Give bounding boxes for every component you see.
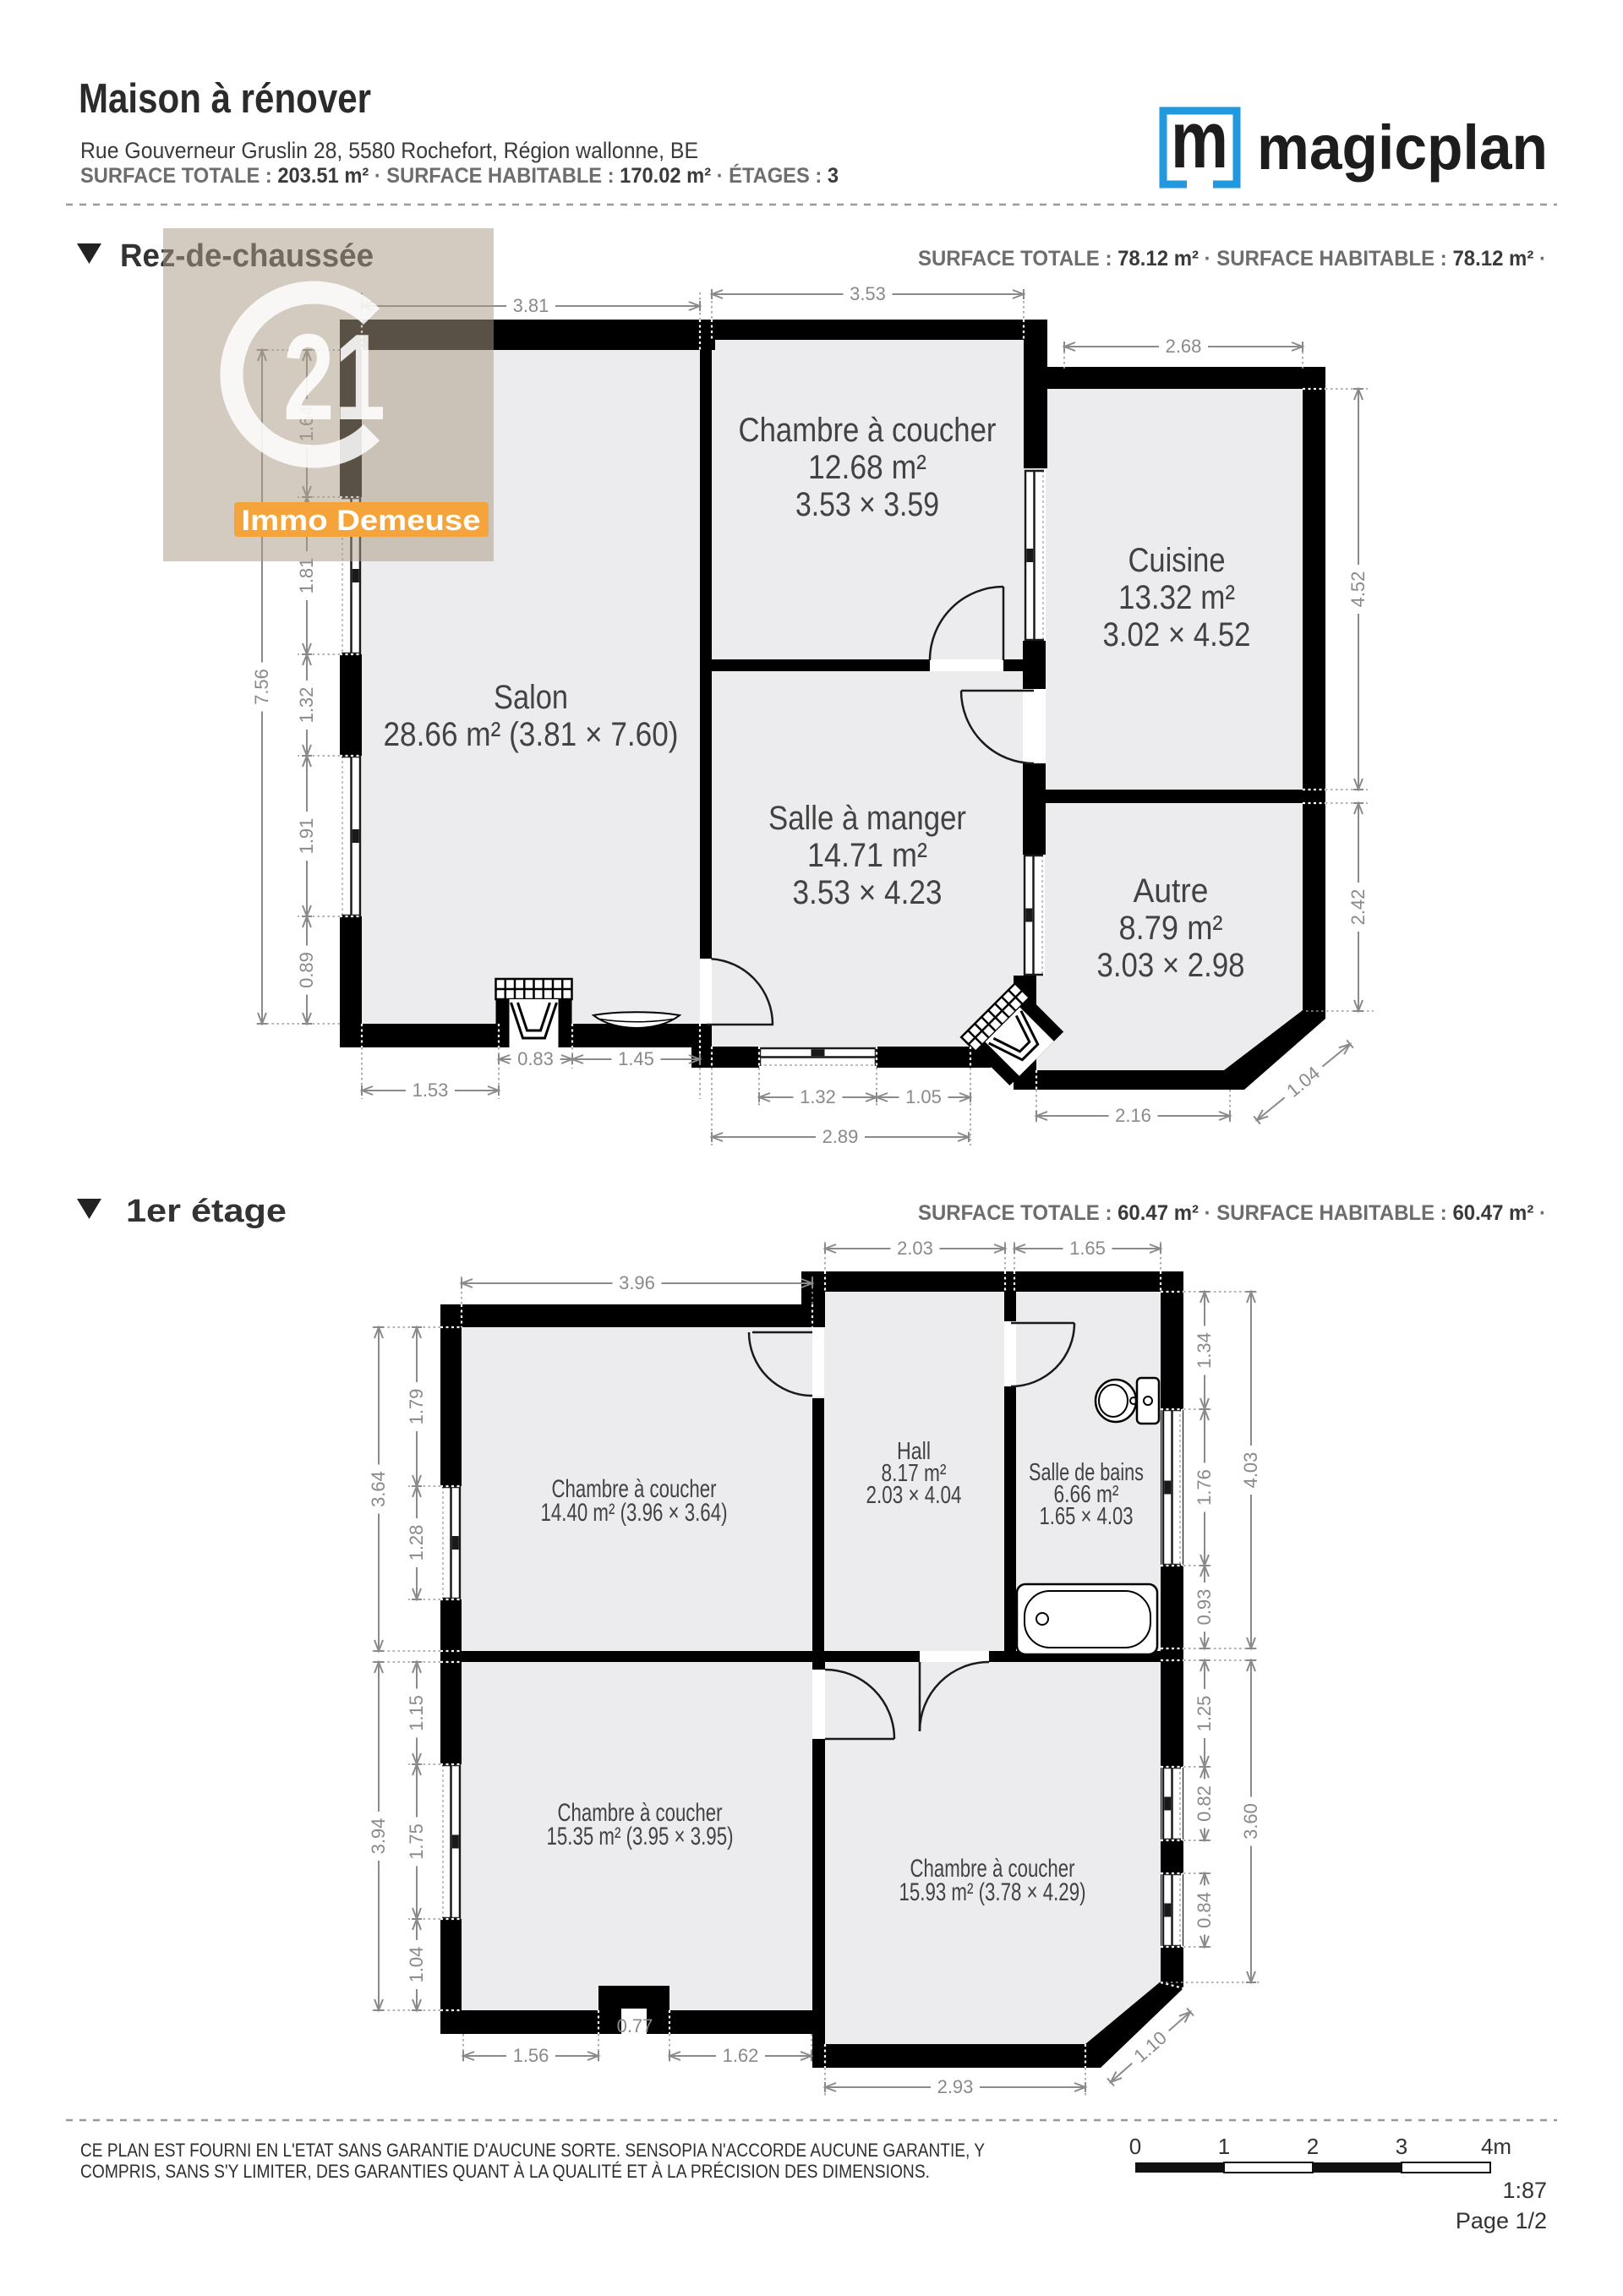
svg-text:COMPRIS, SANS S'Y LIMITER, DES: COMPRIS, SANS S'Y LIMITER, DES GARANTIES… <box>80 2161 930 2182</box>
svg-text:2.93: 2.93 <box>937 2076 974 2097</box>
svg-text:2.68: 2.68 <box>1166 336 1202 357</box>
svg-text:15.93 m² (3.78 × 4.29): 15.93 m² (3.78 × 4.29) <box>899 1878 1086 1906</box>
svg-text:2.42: 2.42 <box>1347 889 1369 926</box>
svg-text:1.65: 1.65 <box>1069 1238 1106 1259</box>
svg-text:3.96: 3.96 <box>619 1272 655 1293</box>
svg-text:1.76: 1.76 <box>1194 1469 1215 1506</box>
svg-text:1.28: 1.28 <box>406 1525 427 1561</box>
svg-text:4.52: 4.52 <box>1347 571 1369 608</box>
svg-text:1.04: 1.04 <box>406 1947 427 1983</box>
svg-text:0.89: 0.89 <box>296 952 317 988</box>
svg-text:1.34: 1.34 <box>1194 1332 1215 1369</box>
svg-text:Page 1/2: Page 1/2 <box>1456 2208 1547 2233</box>
svg-text:13.32 m²: 13.32 m² <box>1118 579 1235 616</box>
svg-text:3.53 × 3.59: 3.53 × 3.59 <box>795 486 939 523</box>
svg-text:1.56: 1.56 <box>513 2045 549 2066</box>
svg-text:1: 1 <box>1218 2134 1230 2159</box>
svg-text:3.53: 3.53 <box>850 283 886 304</box>
svg-text:2.16: 2.16 <box>1115 1105 1151 1126</box>
svg-text:15.35 m² (3.95 × 3.95): 15.35 m² (3.95 × 3.95) <box>547 1823 734 1850</box>
svg-text:3.81: 3.81 <box>513 295 549 316</box>
svg-text:SURFACE TOTALE : 60.47 m² · SU: SURFACE TOTALE : 60.47 m² · SURFACE HABI… <box>918 1201 1546 1225</box>
svg-text:3.64: 3.64 <box>368 1471 389 1507</box>
svg-text:1.62: 1.62 <box>723 2045 759 2066</box>
svg-text:1.75: 1.75 <box>406 1823 427 1860</box>
svg-text:1.81: 1.81 <box>296 558 317 594</box>
svg-text:2.89: 2.89 <box>822 1126 859 1147</box>
svg-text:Immo Demeuse: Immo Demeuse <box>242 505 481 537</box>
svg-text:1:87: 1:87 <box>1502 2178 1547 2203</box>
svg-text:14.40 m² (3.96 × 3.64): 14.40 m² (3.96 × 3.64) <box>541 1499 728 1527</box>
svg-text:0.93: 0.93 <box>1194 1589 1215 1626</box>
svg-text:3.53 × 4.23: 3.53 × 4.23 <box>793 874 943 911</box>
svg-text:0.83: 0.83 <box>517 1048 554 1069</box>
svg-text:14.71 m²: 14.71 m² <box>807 837 927 874</box>
svg-text:2: 2 <box>1307 2134 1319 2159</box>
svg-text:0.84: 0.84 <box>1194 1892 1215 1928</box>
svg-text:0.82: 0.82 <box>1194 1785 1215 1822</box>
svg-text:SURFACE TOTALE : 78.12 m² · SU: SURFACE TOTALE : 78.12 m² · SURFACE HABI… <box>918 247 1546 271</box>
svg-text:1.25: 1.25 <box>1194 1696 1215 1732</box>
svg-text:Autre: Autre <box>1134 872 1209 910</box>
svg-text:magicplan: magicplan <box>1257 112 1548 183</box>
svg-text:12.68 m²: 12.68 m² <box>808 449 926 486</box>
svg-text:1.32: 1.32 <box>800 1086 836 1107</box>
svg-text:Rue Gouverneur Gruslin 28, 558: Rue Gouverneur Gruslin 28, 5580 Rochefor… <box>80 138 698 163</box>
svg-text:3.02 × 4.52: 3.02 × 4.52 <box>1103 616 1251 653</box>
svg-text:0: 0 <box>1129 2134 1141 2159</box>
svg-text:Salle à manger: Salle à manger <box>768 800 966 837</box>
svg-text:8.79 m²: 8.79 m² <box>1119 910 1223 947</box>
svg-text:SURFACE TOTALE : 203.51 m² · S: SURFACE TOTALE : 203.51 m² · SURFACE HAB… <box>80 163 839 188</box>
svg-text:4m: 4m <box>1481 2134 1511 2159</box>
svg-text:2.03 × 4.04: 2.03 × 4.04 <box>866 1482 962 1509</box>
svg-text:Salon: Salon <box>494 679 568 716</box>
svg-text:1.32: 1.32 <box>296 687 317 724</box>
svg-text:7.56: 7.56 <box>251 669 272 705</box>
svg-text:1er étage: 1er étage <box>126 1194 287 1229</box>
svg-text:CE PLAN EST FOURNI EN L'ETAT S: CE PLAN EST FOURNI EN L'ETAT SANS GARANT… <box>80 2140 985 2161</box>
svg-text:Cuisine: Cuisine <box>1128 542 1226 579</box>
svg-text:3.94: 3.94 <box>368 1818 389 1855</box>
svg-text:Chambre à coucher: Chambre à coucher <box>739 412 997 449</box>
svg-text:28.66 m² (3.81 × 7.60): 28.66 m² (3.81 × 7.60) <box>384 716 679 753</box>
svg-text:1.65 × 4.03: 1.65 × 4.03 <box>1040 1503 1134 1530</box>
svg-text:3.03 × 2.98: 3.03 × 2.98 <box>1097 947 1245 984</box>
svg-text:1.45: 1.45 <box>618 1048 654 1069</box>
svg-text:1.05: 1.05 <box>905 1086 942 1107</box>
svg-text:3: 3 <box>1396 2134 1407 2159</box>
svg-text:4.03: 4.03 <box>1240 1452 1261 1489</box>
svg-text:3.60: 3.60 <box>1240 1803 1261 1840</box>
svg-text:1.53: 1.53 <box>413 1080 449 1101</box>
svg-text:2.03: 2.03 <box>897 1238 933 1259</box>
svg-text:1.91: 1.91 <box>296 818 317 855</box>
svg-text:1.79: 1.79 <box>406 1389 427 1425</box>
svg-text:1.15: 1.15 <box>406 1695 427 1731</box>
svg-text:m: m <box>1171 95 1228 185</box>
svg-text:Maison à rénover: Maison à rénover <box>79 76 371 122</box>
svg-text:21: 21 <box>283 309 385 446</box>
svg-text:0.77: 0.77 <box>617 2015 653 2036</box>
